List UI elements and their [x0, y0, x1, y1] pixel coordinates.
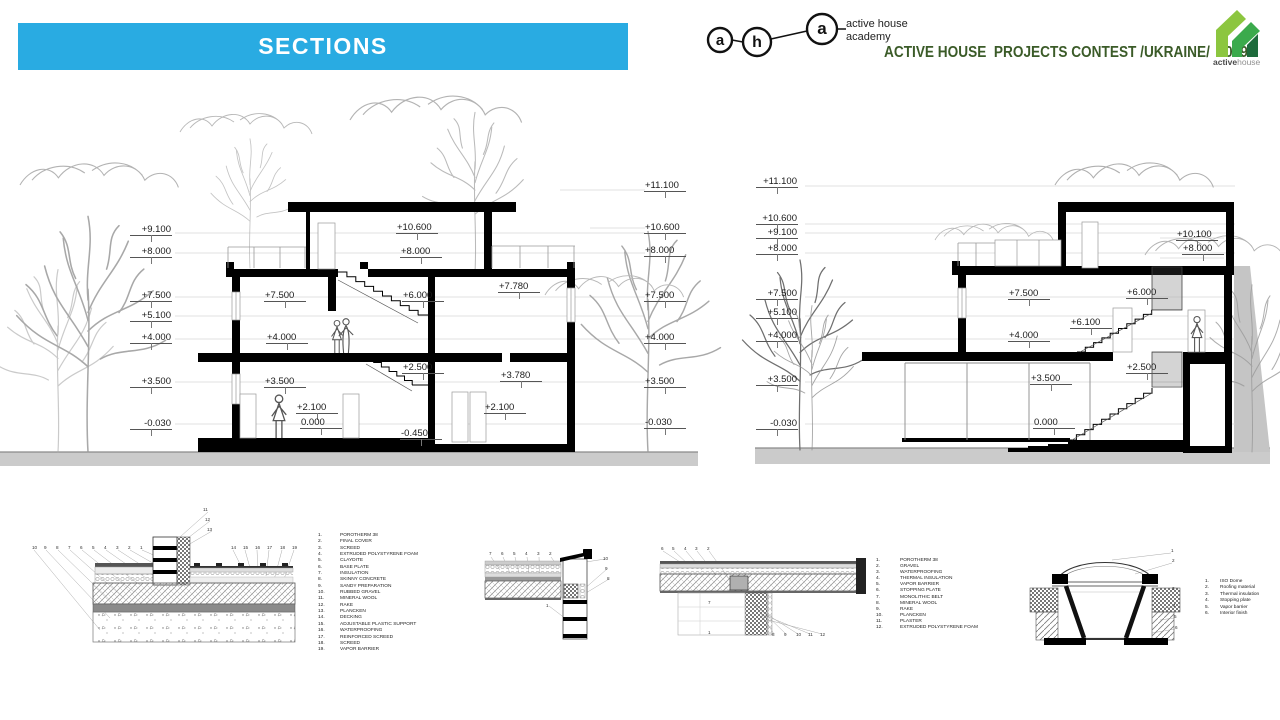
section-1-drawing	[0, 96, 720, 452]
railing-lines	[228, 246, 575, 268]
trees-sketch	[0, 96, 720, 452]
slide: SECTIONS a h a active house academy ACTI…	[0, 0, 1280, 720]
shaft-void	[1190, 364, 1225, 446]
glass-wall-lines	[905, 363, 1090, 440]
stairs	[338, 272, 430, 391]
stairs	[1068, 310, 1152, 440]
sections-drawing	[0, 0, 1280, 720]
ground-strips	[0, 266, 1270, 466]
stair-flight-block	[1152, 267, 1182, 310]
detail-3-drawing	[660, 551, 866, 635]
detail-1-drawing	[34, 512, 295, 642]
section-2-drawing	[743, 163, 1280, 453]
section-1-windows-doors	[232, 223, 575, 442]
stair-flight-block	[1152, 352, 1182, 387]
section-2-structure	[862, 202, 1234, 453]
detail-2-drawing	[485, 549, 609, 639]
people	[272, 319, 353, 438]
detail-4-drawing	[1030, 553, 1180, 645]
